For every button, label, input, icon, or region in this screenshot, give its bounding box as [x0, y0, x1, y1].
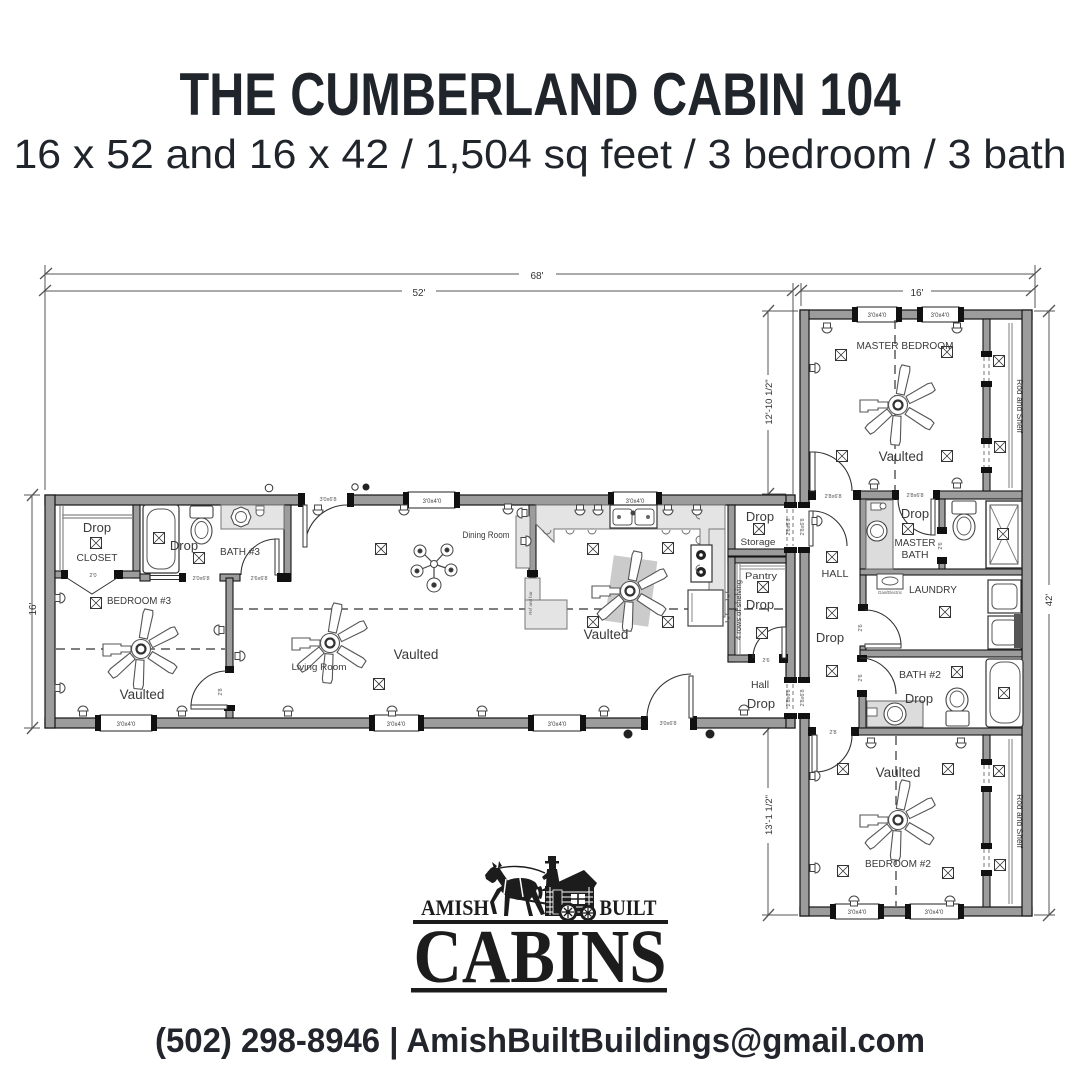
svg-text:3'0x4'0: 3'0x4'0: [868, 313, 887, 319]
svg-text:3'0x4'0: 3'0x4'0: [423, 499, 442, 505]
svg-text:2'0: 2'0: [89, 573, 96, 579]
svg-text:BATH #3: BATH #3: [220, 547, 260, 558]
svg-text:HALL: HALL: [822, 568, 849, 580]
svg-text:2'6: 2'6: [858, 674, 864, 681]
svg-text:(502) 298-8946 | AmishBuiltBui: (502) 298-8946 | AmishBuiltBuildings@gma…: [155, 1022, 925, 1060]
svg-text:Drop: Drop: [83, 520, 111, 535]
svg-text:2'6: 2'6: [762, 658, 769, 664]
svg-text:Drop: Drop: [746, 509, 774, 524]
svg-text:MASTER BEDROOM: MASTER BEDROOM: [857, 341, 954, 352]
svg-text:2'8: 2'8: [829, 730, 836, 736]
svg-text:Drop: Drop: [816, 630, 844, 645]
svg-text:Rod and Shelf: Rod and Shelf: [1015, 794, 1025, 849]
svg-text:Gas/Electric: Gas/Electric: [878, 590, 903, 595]
svg-text:2'8x6'8: 2'8x6'8: [800, 689, 806, 706]
svg-text:CLOSET: CLOSET: [77, 553, 118, 564]
svg-text:Drop: Drop: [747, 696, 775, 711]
svg-text:BATH: BATH: [902, 550, 929, 561]
svg-text:Drop: Drop: [170, 538, 198, 553]
svg-text:Drop: Drop: [905, 691, 933, 706]
svg-text:Vaulted: Vaulted: [394, 647, 439, 662]
svg-text:3'0x6'8: 3'0x6'8: [319, 497, 336, 503]
svg-text:3'0x4'0: 3'0x4'0: [117, 722, 136, 728]
svg-text:4 rows of shelving: 4 rows of shelving: [734, 580, 743, 640]
svg-text:13'-1 1/2": 13'-1 1/2": [764, 795, 775, 835]
svg-text:2'8x6'8: 2'8x6'8: [906, 493, 923, 499]
svg-text:BEDROOM #2: BEDROOM #2: [865, 859, 931, 870]
svg-text:2'6: 2'6: [938, 542, 944, 549]
svg-text:MASTER: MASTER: [895, 538, 936, 549]
svg-text:2'8x6'8: 2'8x6'8: [786, 689, 792, 706]
svg-text:12'-10 1/2": 12'-10 1/2": [764, 379, 775, 424]
svg-text:BATH #2: BATH #2: [899, 670, 941, 681]
svg-text:3'0x4'0: 3'0x4'0: [925, 910, 944, 916]
svg-text:Living Room: Living Room: [292, 662, 347, 673]
svg-text:68': 68': [530, 271, 543, 282]
svg-text:Dining Room: Dining Room: [463, 530, 510, 540]
svg-text:Storage: Storage: [741, 537, 776, 548]
svg-text:Vaulted: Vaulted: [879, 449, 924, 464]
svg-text:LAUNDRY: LAUNDRY: [909, 585, 957, 596]
svg-text:42': 42': [1044, 594, 1055, 607]
svg-text:3'0x6'8: 3'0x6'8: [659, 721, 676, 727]
svg-text:2'8x6'8: 2'8x6'8: [786, 518, 792, 535]
svg-text:3'0x4'0: 3'0x4'0: [626, 499, 645, 505]
svg-text:3'0x4'0: 3'0x4'0: [548, 722, 567, 728]
svg-text:16': 16': [910, 288, 923, 299]
svg-text:THE CUMBERLAND CABIN 104: THE CUMBERLAND CABIN 104: [180, 61, 902, 128]
svg-text:16': 16': [28, 602, 39, 615]
svg-text:Hall: Hall: [751, 679, 769, 691]
svg-text:3'0x4'0: 3'0x4'0: [931, 313, 950, 319]
svg-text:Pantry: Pantry: [745, 571, 777, 582]
svg-text:2'8x6'8: 2'8x6'8: [824, 494, 841, 500]
svg-text:Vaulted: Vaulted: [584, 627, 629, 642]
svg-text:Vaulted: Vaulted: [120, 687, 165, 702]
svg-text:2'8: 2'8: [218, 688, 224, 695]
svg-text:Vaulted: Vaulted: [876, 765, 921, 780]
svg-text:BEDROOM #3: BEDROOM #3: [107, 596, 171, 607]
svg-text:Drop: Drop: [901, 506, 929, 521]
svg-text:Ref and bar: Ref and bar: [528, 591, 533, 615]
svg-text:2'8x6'8: 2'8x6'8: [800, 518, 806, 535]
svg-text:2'0x6'8: 2'0x6'8: [192, 576, 209, 582]
svg-text:3'0x4'0: 3'0x4'0: [848, 910, 867, 916]
svg-text:Drop: Drop: [746, 597, 774, 612]
svg-text:16 x 52 and 16 x 42 / 1,504 sq: 16 x 52 and 16 x 42 / 1,504 sq feet / 3 …: [14, 131, 1067, 177]
svg-text:CABINS: CABINS: [414, 915, 667, 999]
svg-text:52': 52': [412, 288, 425, 299]
svg-text:2'6x6'8: 2'6x6'8: [250, 576, 267, 582]
svg-text:Rod and Shelf: Rod and Shelf: [1015, 379, 1025, 434]
svg-text:3'0x4'0: 3'0x4'0: [387, 722, 406, 728]
svg-text:2'6: 2'6: [858, 624, 864, 631]
